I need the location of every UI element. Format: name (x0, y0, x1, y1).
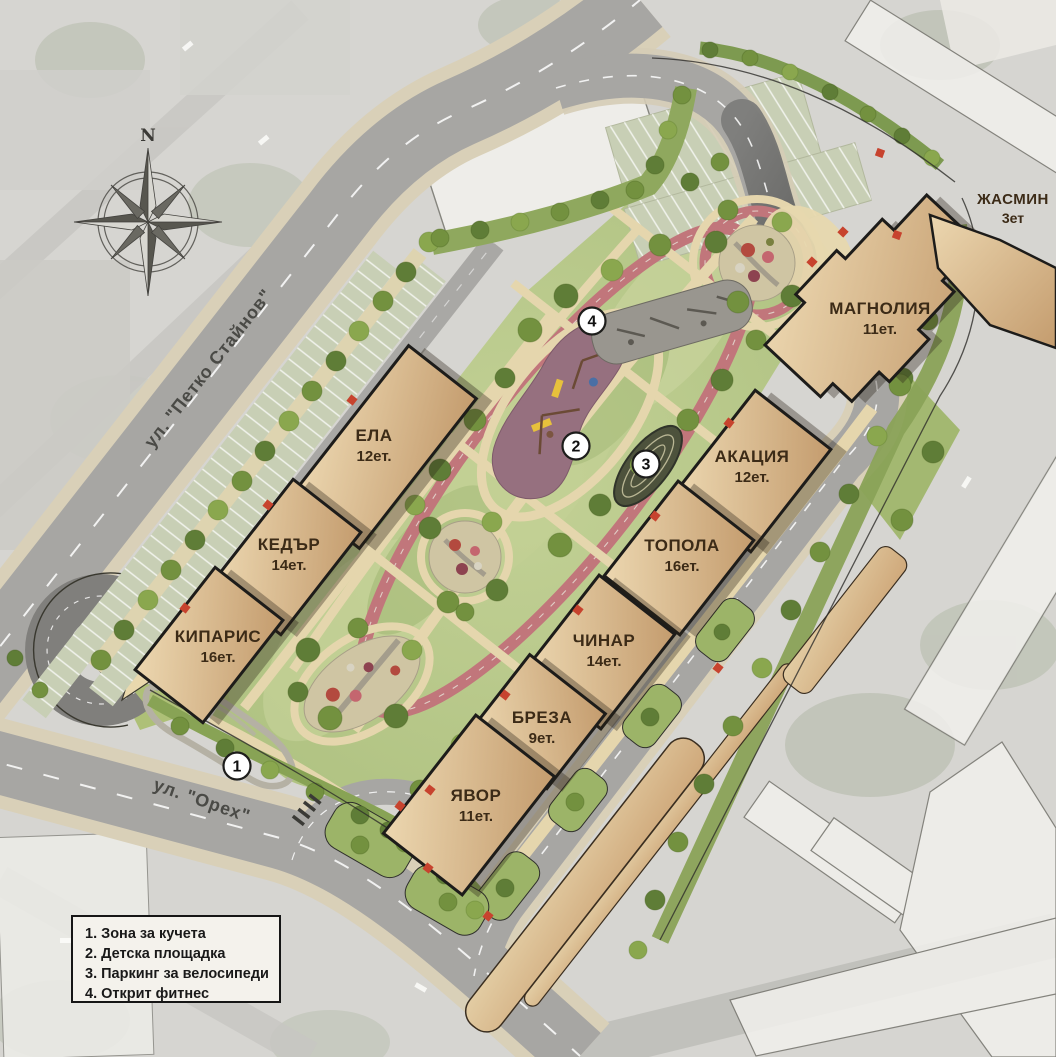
building-chinar-label: ЧИНАР (573, 631, 636, 650)
legend-item-4: 4. Открит фитнес (85, 986, 209, 1002)
site-plan: ул. "Петко Стайнов" ул. "Орех" ЕЛА 12ет.… (0, 0, 1056, 1057)
svg-text:2: 2 (572, 439, 581, 456)
north-label: N (140, 126, 156, 146)
building-kiparis-floors: 16ет. (200, 649, 235, 666)
building-kedar-label: КЕДЪР (258, 535, 320, 554)
map-marker-4: 4 (579, 308, 606, 335)
legend-item-2: 2. Детска площадка (85, 946, 226, 962)
svg-text:3: 3 (642, 457, 651, 474)
svg-text:4: 4 (588, 314, 597, 331)
legend-item-3: 3. Паркинг за велосипеди (85, 966, 269, 982)
building-kedar-floors: 14ет. (271, 557, 306, 574)
map-marker-3: 3 (633, 451, 660, 478)
building-kiparis-label: КИПАРИС (175, 627, 261, 646)
building-magnolia-label: МАГНОЛИЯ (829, 299, 931, 318)
legend-item-1: 1. Зона за кучета (85, 926, 207, 942)
building-akatsia-floors: 12ет. (734, 469, 769, 486)
building-chinar-floors: 14ет. (586, 653, 621, 670)
site-plan-svg: ул. "Петко Стайнов" ул. "Орех" ЕЛА 12ет.… (0, 0, 1056, 1057)
building-zhasmin-label: ЖАСМИН (976, 191, 1049, 208)
building-topola-label: ТОПОЛА (644, 536, 719, 555)
building-magnolia-floors: 11ет. (863, 321, 897, 338)
svg-text:1: 1 (233, 759, 242, 776)
building-yavor-floors: 11ет. (459, 808, 493, 825)
building-breza-label: БРЕЗА (512, 708, 572, 727)
building-ela-label: ЕЛА (355, 426, 392, 445)
building-akatsia-label: АКАЦИЯ (715, 447, 790, 466)
legend: 1. Зона за кучета 2. Детска площадка 3. … (72, 916, 280, 1002)
building-ela-floors: 12ет. (356, 448, 391, 465)
building-zhasmin-floors: 3ет (1002, 210, 1024, 226)
building-breza-floors: 9ет. (529, 730, 556, 747)
building-yavor-label: ЯВОР (451, 786, 502, 805)
building-topola-floors: 16ет. (664, 558, 699, 575)
map-marker-1: 1 (224, 753, 251, 780)
map-marker-2: 2 (563, 433, 590, 460)
